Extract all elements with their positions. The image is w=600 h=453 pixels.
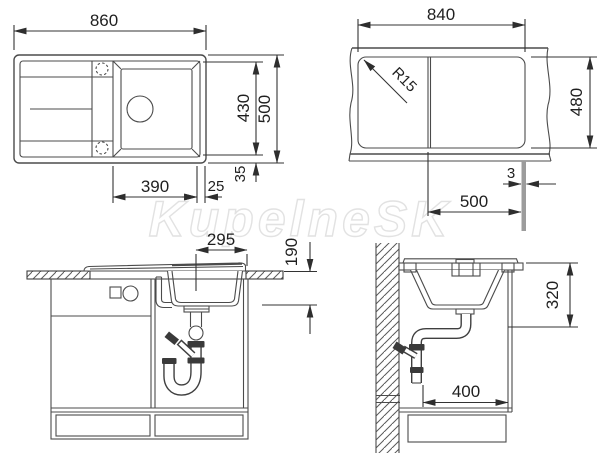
dim-25-label: 25 <box>208 178 225 195</box>
pipe-nut <box>410 367 424 373</box>
dim-3-label: 3 <box>507 165 515 182</box>
dim-860-label: 860 <box>90 11 118 30</box>
dim-320-label: 320 <box>543 281 562 309</box>
worktop-hatched-right <box>246 271 283 279</box>
dim-500-cutout-label: 500 <box>460 192 488 211</box>
pipe-nut <box>162 358 177 364</box>
dim-480-label: 480 <box>567 88 586 116</box>
partition-edge-reference <box>522 161 527 231</box>
dim-840-label: 840 <box>427 5 455 24</box>
dim-500-label: 500 <box>255 95 274 123</box>
pipe-nut <box>188 341 205 348</box>
dim-430-label: 430 <box>234 94 253 122</box>
pipe-nut <box>188 358 205 364</box>
dim-190-label: 190 <box>282 238 301 266</box>
worktop-hatched-left <box>27 271 90 279</box>
pipe-nut <box>409 344 425 351</box>
dim-400-label: 400 <box>452 382 480 401</box>
installation-drawing-sheet: KupelneSK 860 <box>0 0 600 453</box>
dim-390-label: 390 <box>141 177 169 196</box>
dim-295-label: 295 <box>207 230 235 249</box>
technical-drawing-canvas: KupelneSK 860 <box>0 0 600 453</box>
dim-35-label: 35 <box>232 166 249 183</box>
worktop-side <box>399 263 523 270</box>
